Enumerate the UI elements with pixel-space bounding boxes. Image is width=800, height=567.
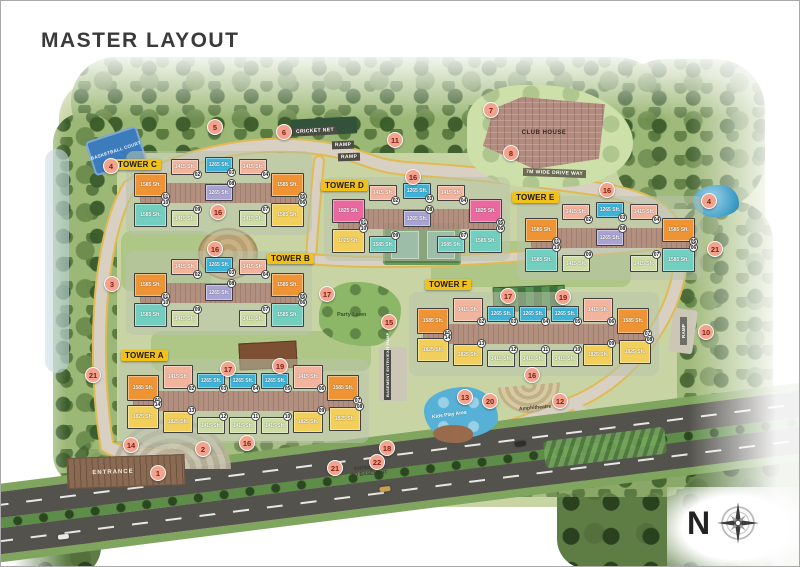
unit-size-label: 1585 Sft. xyxy=(423,318,444,324)
ramp-label-right: RAMP xyxy=(680,317,687,345)
tower-e-cluster: 1585 Sft.011415 Sft.021265 Sft.031415 Sf… xyxy=(525,202,695,272)
unit-size-label: 1825 Sft. xyxy=(168,419,189,425)
unit-number: 04 xyxy=(261,270,270,279)
unit-size-label: 1415 Sft. xyxy=(243,216,264,222)
unit-number: 10 xyxy=(161,198,170,207)
unit-size-label: 1265 Sft. xyxy=(265,378,286,384)
unit-number: 09 xyxy=(607,339,616,348)
car xyxy=(58,534,70,540)
unit-size-label: 1265 Sft. xyxy=(600,207,621,213)
amenity-marker-14: 14 xyxy=(123,437,139,453)
unit-size-label: 1585 Sft. xyxy=(333,385,354,391)
unit-number: 10 xyxy=(283,412,292,421)
unit-block-d-10: 1025 Sft. xyxy=(332,229,365,253)
unit-block-f-14: 1825 Sft. xyxy=(417,338,449,362)
unit-number: 04 xyxy=(251,384,260,393)
unit-number: 04 xyxy=(652,215,661,224)
unit-size-label: 1585 Sft. xyxy=(277,282,298,288)
tower-d-label: TOWER D xyxy=(321,180,368,191)
unit-number: 08 xyxy=(618,224,627,233)
unit-block-e-06: 1585 Sft. xyxy=(662,248,695,272)
unit-size-label: 1825 Sft. xyxy=(133,414,154,420)
amenity-marker-19: 19 xyxy=(272,358,288,374)
amenity-marker-22: 22 xyxy=(369,454,385,470)
tower-b-cluster: 1585 Sft.011415 Sft.021265 Sft.031415 Sf… xyxy=(134,257,304,327)
unit-size-label: 1825 Sft. xyxy=(475,208,496,214)
unit-size-label: 1585 Sft. xyxy=(668,257,689,263)
unit-number: 13 xyxy=(187,406,196,415)
unit-size-label: 1825 Sft. xyxy=(625,349,646,355)
unit-size-label: 1415 Sft. xyxy=(555,356,576,362)
tower-c-label: TOWER C xyxy=(114,159,161,170)
unit-number: 14 xyxy=(443,333,452,342)
amenity-marker-16: 16 xyxy=(599,182,615,198)
unit-block-d-06: 1585 Sft. xyxy=(469,229,502,253)
unit-number: 09 xyxy=(193,305,202,314)
amenity-marker-16: 16 xyxy=(207,241,223,257)
unit-number: 08 xyxy=(227,279,236,288)
amenity-marker-16: 16 xyxy=(405,169,421,185)
unit-size-label: 1265 Sft. xyxy=(209,290,230,296)
unit-size-label: 1585 Sft. xyxy=(133,385,154,391)
master-layout-plan: BASKETBALL COURT CLUB HOUSE ENTRANCE CRI… xyxy=(0,0,800,567)
amenity-marker-21: 21 xyxy=(707,241,723,257)
unit-number: 09 xyxy=(584,250,593,259)
amenity-marker-16: 16 xyxy=(210,204,226,220)
unit-number: 03 xyxy=(618,213,627,222)
unit-number: 07 xyxy=(459,231,468,240)
amenity-marker-4: 4 xyxy=(701,193,717,209)
unit-number: 08 xyxy=(355,402,364,411)
unit-number: 12 xyxy=(509,345,518,354)
amenity-marker-18: 18 xyxy=(379,440,395,456)
unit-size-label: 1585 Sft. xyxy=(277,182,298,188)
entrance-gate: ENTRANCE xyxy=(66,454,185,489)
unit-block-b-10: 1585 Sft. xyxy=(134,303,167,327)
unit-size-label: 1585 Sft. xyxy=(277,212,298,218)
unit-number: 02 xyxy=(477,317,486,326)
compass: N xyxy=(687,501,760,545)
amenity-marker-8: 8 xyxy=(503,145,519,161)
unit-number: 02 xyxy=(193,270,202,279)
club-house-label: CLUB HOUSE xyxy=(522,130,567,136)
compass-rose-icon xyxy=(716,501,760,545)
unit-number: 11 xyxy=(541,345,550,354)
amenity-marker-21: 21 xyxy=(327,460,343,476)
unit-size-label: 1265 Sft. xyxy=(233,378,254,384)
unit-number: 02 xyxy=(193,170,202,179)
unit-size-label: 1825 Sft. xyxy=(423,347,444,353)
unit-size-label: 1415 Sft. xyxy=(175,316,196,322)
unit-number: 03 xyxy=(219,384,228,393)
unit-number: 08 xyxy=(227,179,236,188)
amenity-marker-11: 11 xyxy=(387,132,403,148)
unit-size-label: 1415 Sft. xyxy=(243,264,264,270)
amenity-marker-19: 19 xyxy=(555,289,571,305)
unit-number: 04 xyxy=(261,170,270,179)
unit-number: 02 xyxy=(391,196,400,205)
compass-north-label: N xyxy=(687,505,710,542)
amenity-marker-17: 17 xyxy=(500,288,516,304)
amenity-marker-16: 16 xyxy=(524,367,540,383)
unit-number: 06 xyxy=(496,224,505,233)
unit-number: 10 xyxy=(552,243,561,252)
amenity-marker-17: 17 xyxy=(319,286,335,302)
ramp-label: RAMP xyxy=(338,153,361,162)
amenity-marker-3: 3 xyxy=(104,276,120,292)
amenity-marker-2: 2 xyxy=(195,441,211,457)
unit-block-a-08: 1825 Sft. xyxy=(329,407,361,431)
tower-f-cluster: 1585 Sft.011415 Sft.021265 Sft.031265 Sf… xyxy=(417,298,651,368)
unit-size-label: 1585 Sft. xyxy=(531,227,552,233)
car xyxy=(515,441,527,447)
tower-a-cluster: 1585 Sft.011415 Sft.021265 Sft.031265 Sf… xyxy=(127,365,361,435)
unit-size-label: 1585 Sft. xyxy=(373,242,394,248)
amenity-marker-10: 10 xyxy=(698,324,714,340)
unit-size-label: 1825 Sft. xyxy=(338,208,359,214)
unit-size-label: 1265 Sft. xyxy=(209,162,230,168)
unit-number: 13 xyxy=(477,339,486,348)
unit-size-label: 1415 Sft. xyxy=(458,307,479,313)
unit-number: 07 xyxy=(261,205,270,214)
unit-size-label: 1415 Sft. xyxy=(243,316,264,322)
sand-pit xyxy=(433,425,473,443)
unit-size-label: 1415 Sft. xyxy=(588,307,609,313)
unit-size-label: 1265 Sft. xyxy=(201,378,222,384)
tower-b-label: TOWER B xyxy=(267,253,314,264)
unit-block-b-06: 1585 Sft. xyxy=(271,303,304,327)
unit-number: 02 xyxy=(584,215,593,224)
unit-size-label: 1265 Sft. xyxy=(209,262,230,268)
unit-block-c-06: 1585 Sft. xyxy=(271,203,304,227)
unit-size-label: 1415 Sft. xyxy=(523,356,544,362)
unit-size-label: 1825 Sft. xyxy=(588,352,609,358)
unit-size-label: 1415 Sft. xyxy=(373,190,394,196)
unit-size-label: 1585 Sft. xyxy=(475,238,496,244)
unit-size-label: 1585 Sft. xyxy=(140,312,161,318)
amenity-marker-16: 16 xyxy=(239,435,255,451)
unit-size-label: 1825 Sft. xyxy=(298,419,319,425)
white-fade-right xyxy=(689,1,800,567)
amenity-marker-4: 4 xyxy=(103,158,119,174)
amenity-marker-5: 5 xyxy=(207,119,223,135)
ramp-label: RAMP xyxy=(332,141,355,150)
tower-f-label: TOWER F xyxy=(425,279,471,290)
unit-number: 05 xyxy=(573,317,582,326)
amenity-marker-6: 6 xyxy=(276,124,292,140)
unit-number: 03 xyxy=(425,194,434,203)
unit-size-label: 1415 Sft. xyxy=(233,423,254,429)
unit-size-label: 1415 Sft. xyxy=(175,164,196,170)
unit-number: 10 xyxy=(161,298,170,307)
amenity-marker-1: 1 xyxy=(150,465,166,481)
unit-number: 04 xyxy=(541,317,550,326)
unit-size-label: 1415 Sft. xyxy=(168,374,189,380)
unit-size-label: 1415 Sft. xyxy=(634,209,655,215)
unit-number: 04 xyxy=(459,196,468,205)
unit-number: 10 xyxy=(573,345,582,354)
unit-size-label: 1415 Sft. xyxy=(243,164,264,170)
page-title: MASTER LAYOUT xyxy=(41,29,239,53)
unit-size-label: 1415 Sft. xyxy=(298,374,319,380)
unit-size-label: 1585 Sft. xyxy=(277,312,298,318)
unit-number: 09 xyxy=(317,406,326,415)
unit-number: 05 xyxy=(283,384,292,393)
unit-size-label: 1585 Sft. xyxy=(531,257,552,263)
unit-size-label: 1265 Sft. xyxy=(523,311,544,317)
unit-number: 03 xyxy=(227,168,236,177)
tower-a-label: TOWER A xyxy=(121,350,168,361)
unit-number: 09 xyxy=(391,231,400,240)
unit-size-label: 1825 Sft. xyxy=(335,416,356,422)
unit-number: 06 xyxy=(317,384,326,393)
party-lawn-label: Party Lawn xyxy=(337,312,366,318)
unit-number: 14 xyxy=(153,400,162,409)
unit-size-label: 1585 Sft. xyxy=(623,318,644,324)
unit-size-label: 1585 Sft. xyxy=(140,182,161,188)
unit-number: 06 xyxy=(689,243,698,252)
amenity-marker-7: 7 xyxy=(483,102,499,118)
unit-number: 12 xyxy=(219,412,228,421)
unit-number: 03 xyxy=(227,268,236,277)
amenity-marker-13: 13 xyxy=(457,389,473,405)
unit-size-label: 1585 Sft. xyxy=(668,227,689,233)
unit-size-label: 1265 Sft. xyxy=(491,311,512,317)
unit-number: 06 xyxy=(607,317,616,326)
unit-block-e-10: 1585 Sft. xyxy=(525,248,558,272)
unit-size-label: 1585 Sft. xyxy=(140,282,161,288)
unit-size-label: 1025 Sft. xyxy=(338,238,359,244)
unit-size-label: 1415 Sft. xyxy=(491,356,512,362)
unit-number: 02 xyxy=(187,384,196,393)
unit-number: 09 xyxy=(193,205,202,214)
unit-size-label: 1415 Sft. xyxy=(265,423,286,429)
unit-size-label: 1415 Sft. xyxy=(566,261,587,267)
unit-size-label: 1415 Sft. xyxy=(175,216,196,222)
unit-size-label: 1585 Sft. xyxy=(140,212,161,218)
unit-size-label: 1265 Sft. xyxy=(407,216,428,222)
unit-block-a-14: 1825 Sft. xyxy=(127,405,159,429)
unit-number: 06 xyxy=(298,298,307,307)
unit-number: 11 xyxy=(251,412,260,421)
unit-size-label: 1415 Sft. xyxy=(566,209,587,215)
amenity-marker-12: 12 xyxy=(552,393,568,409)
unit-size-label: 1415 Sft. xyxy=(634,261,655,267)
unit-number: 03 xyxy=(509,317,518,326)
unit-size-label: 1415 Sft. xyxy=(201,423,222,429)
unit-number: 08 xyxy=(425,205,434,214)
amenity-marker-20: 20 xyxy=(482,393,498,409)
unit-size-label: 1585 Sft. xyxy=(441,242,462,248)
unit-size-label: 1265 Sft. xyxy=(555,311,576,317)
unit-size-label: 1265 Sft. xyxy=(600,235,621,241)
amenity-marker-17: 17 xyxy=(220,361,236,377)
tower-d-cluster: 1825 Sft.011415 Sft.021265 Sft.031415 Sf… xyxy=(332,183,502,253)
unit-number: 10 xyxy=(359,224,368,233)
amenity-marker-21: 21 xyxy=(85,367,101,383)
unit-block-f-08: 1825 Sft. xyxy=(619,340,651,364)
unit-number: 07 xyxy=(652,250,661,259)
entrance-label: ENTRANCE xyxy=(92,468,134,475)
unit-size-label: 1415 Sft. xyxy=(175,264,196,270)
unit-block-c-10: 1585 Sft. xyxy=(134,203,167,227)
unit-number: 06 xyxy=(298,198,307,207)
unit-number: 07 xyxy=(261,305,270,314)
amenity-marker-15: 15 xyxy=(381,314,397,330)
unit-size-label: 1265 Sft. xyxy=(407,188,428,194)
unit-size-label: 1825 Sft. xyxy=(458,352,479,358)
unit-size-label: 1265 Sft. xyxy=(209,190,230,196)
unit-number: 08 xyxy=(645,335,654,344)
basement-ramp-label: BASEMENT ENTRY/EXIT RAMP xyxy=(384,350,391,400)
unit-size-label: 1415 Sft. xyxy=(441,190,462,196)
tower-e-label: TOWER E xyxy=(512,192,559,203)
